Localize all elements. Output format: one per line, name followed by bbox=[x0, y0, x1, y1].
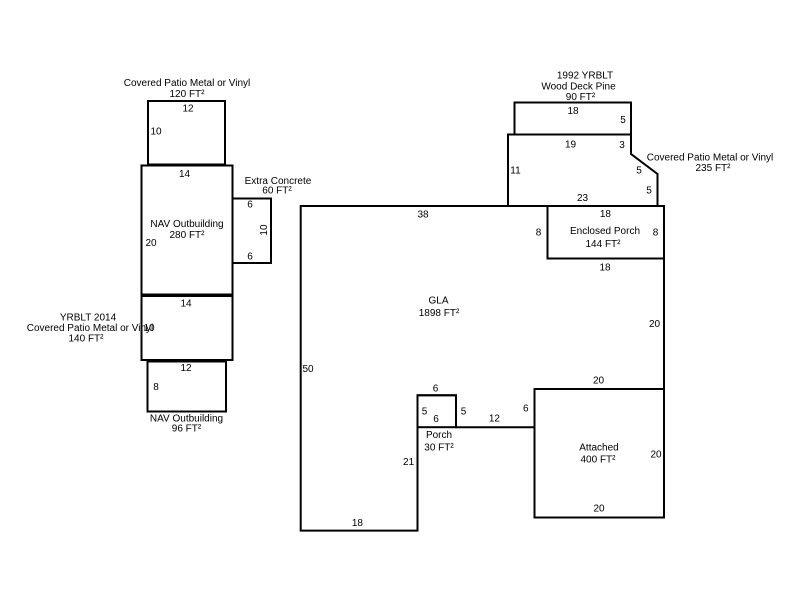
svg-text:5: 5 bbox=[636, 166, 642, 177]
svg-text:400 FT²: 400 FT² bbox=[580, 455, 616, 466]
svg-text:144 FT²: 144 FT² bbox=[585, 239, 621, 250]
svg-text:12: 12 bbox=[489, 414, 501, 425]
svg-text:235 FT²: 235 FT² bbox=[695, 163, 731, 174]
svg-text:Covered Patio Metal or Vinyl: Covered Patio Metal or Vinyl bbox=[27, 323, 154, 334]
svg-text:90 FT²: 90 FT² bbox=[566, 92, 596, 103]
svg-text:23: 23 bbox=[577, 193, 589, 204]
svg-text:6: 6 bbox=[247, 252, 253, 263]
svg-text:Covered Patio Metal or Vinyl: Covered Patio Metal or Vinyl bbox=[647, 152, 774, 163]
svg-text:8: 8 bbox=[653, 228, 659, 239]
svg-text:20: 20 bbox=[650, 450, 662, 461]
svg-text:14: 14 bbox=[179, 169, 191, 180]
svg-text:21: 21 bbox=[403, 457, 415, 468]
svg-text:18: 18 bbox=[599, 263, 611, 274]
svg-text:3: 3 bbox=[619, 140, 625, 151]
svg-text:Covered Patio Metal or Vinyl: Covered Patio Metal or Vinyl bbox=[124, 78, 251, 89]
svg-text:20: 20 bbox=[145, 238, 157, 249]
svg-text:14: 14 bbox=[180, 299, 192, 310]
svg-text:6: 6 bbox=[433, 384, 439, 395]
svg-text:Attached: Attached bbox=[579, 443, 618, 454]
svg-text:20: 20 bbox=[593, 504, 605, 515]
svg-text:12: 12 bbox=[180, 363, 192, 374]
svg-text:5: 5 bbox=[646, 186, 652, 197]
svg-text:6: 6 bbox=[523, 404, 529, 415]
svg-text:38: 38 bbox=[417, 210, 429, 221]
svg-text:5: 5 bbox=[461, 407, 467, 418]
svg-text:18: 18 bbox=[567, 106, 579, 117]
svg-text:6: 6 bbox=[247, 200, 253, 211]
svg-text:YRBLT 2014: YRBLT 2014 bbox=[60, 313, 117, 324]
svg-text:280 FT²: 280 FT² bbox=[169, 230, 205, 241]
svg-text:10: 10 bbox=[259, 224, 270, 236]
svg-text:60 FT²: 60 FT² bbox=[262, 186, 292, 197]
svg-text:20: 20 bbox=[649, 319, 661, 330]
svg-text:10: 10 bbox=[150, 127, 162, 138]
svg-text:18: 18 bbox=[352, 518, 364, 529]
svg-text:Porch: Porch bbox=[426, 430, 452, 441]
svg-text:Enclosed Porch: Enclosed Porch bbox=[570, 226, 640, 237]
svg-text:30 FT²: 30 FT² bbox=[424, 443, 454, 454]
svg-text:12: 12 bbox=[182, 104, 194, 115]
svg-text:1898 FT²: 1898 FT² bbox=[419, 308, 460, 319]
svg-text:140 FT²: 140 FT² bbox=[68, 334, 104, 345]
svg-text:11: 11 bbox=[510, 166, 521, 177]
svg-text:8: 8 bbox=[536, 228, 542, 239]
svg-text:50: 50 bbox=[302, 364, 314, 375]
svg-text:1992 YRBLT: 1992 YRBLT bbox=[557, 71, 613, 82]
svg-text:5: 5 bbox=[620, 115, 626, 126]
svg-text:10: 10 bbox=[143, 323, 155, 334]
svg-text:96 FT²: 96 FT² bbox=[172, 424, 202, 435]
svg-text:19: 19 bbox=[565, 140, 577, 151]
svg-text:20: 20 bbox=[593, 376, 605, 387]
svg-text:18: 18 bbox=[600, 209, 612, 220]
svg-text:GLA: GLA bbox=[428, 296, 448, 307]
svg-text:6: 6 bbox=[433, 414, 439, 425]
svg-text:5: 5 bbox=[422, 407, 428, 418]
svg-text:8: 8 bbox=[153, 382, 159, 393]
svg-text:Wood Deck Pine: Wood Deck Pine bbox=[541, 82, 616, 93]
svg-text:120 FT²: 120 FT² bbox=[169, 89, 205, 100]
svg-text:NAV Outbuilding: NAV Outbuilding bbox=[150, 219, 223, 230]
